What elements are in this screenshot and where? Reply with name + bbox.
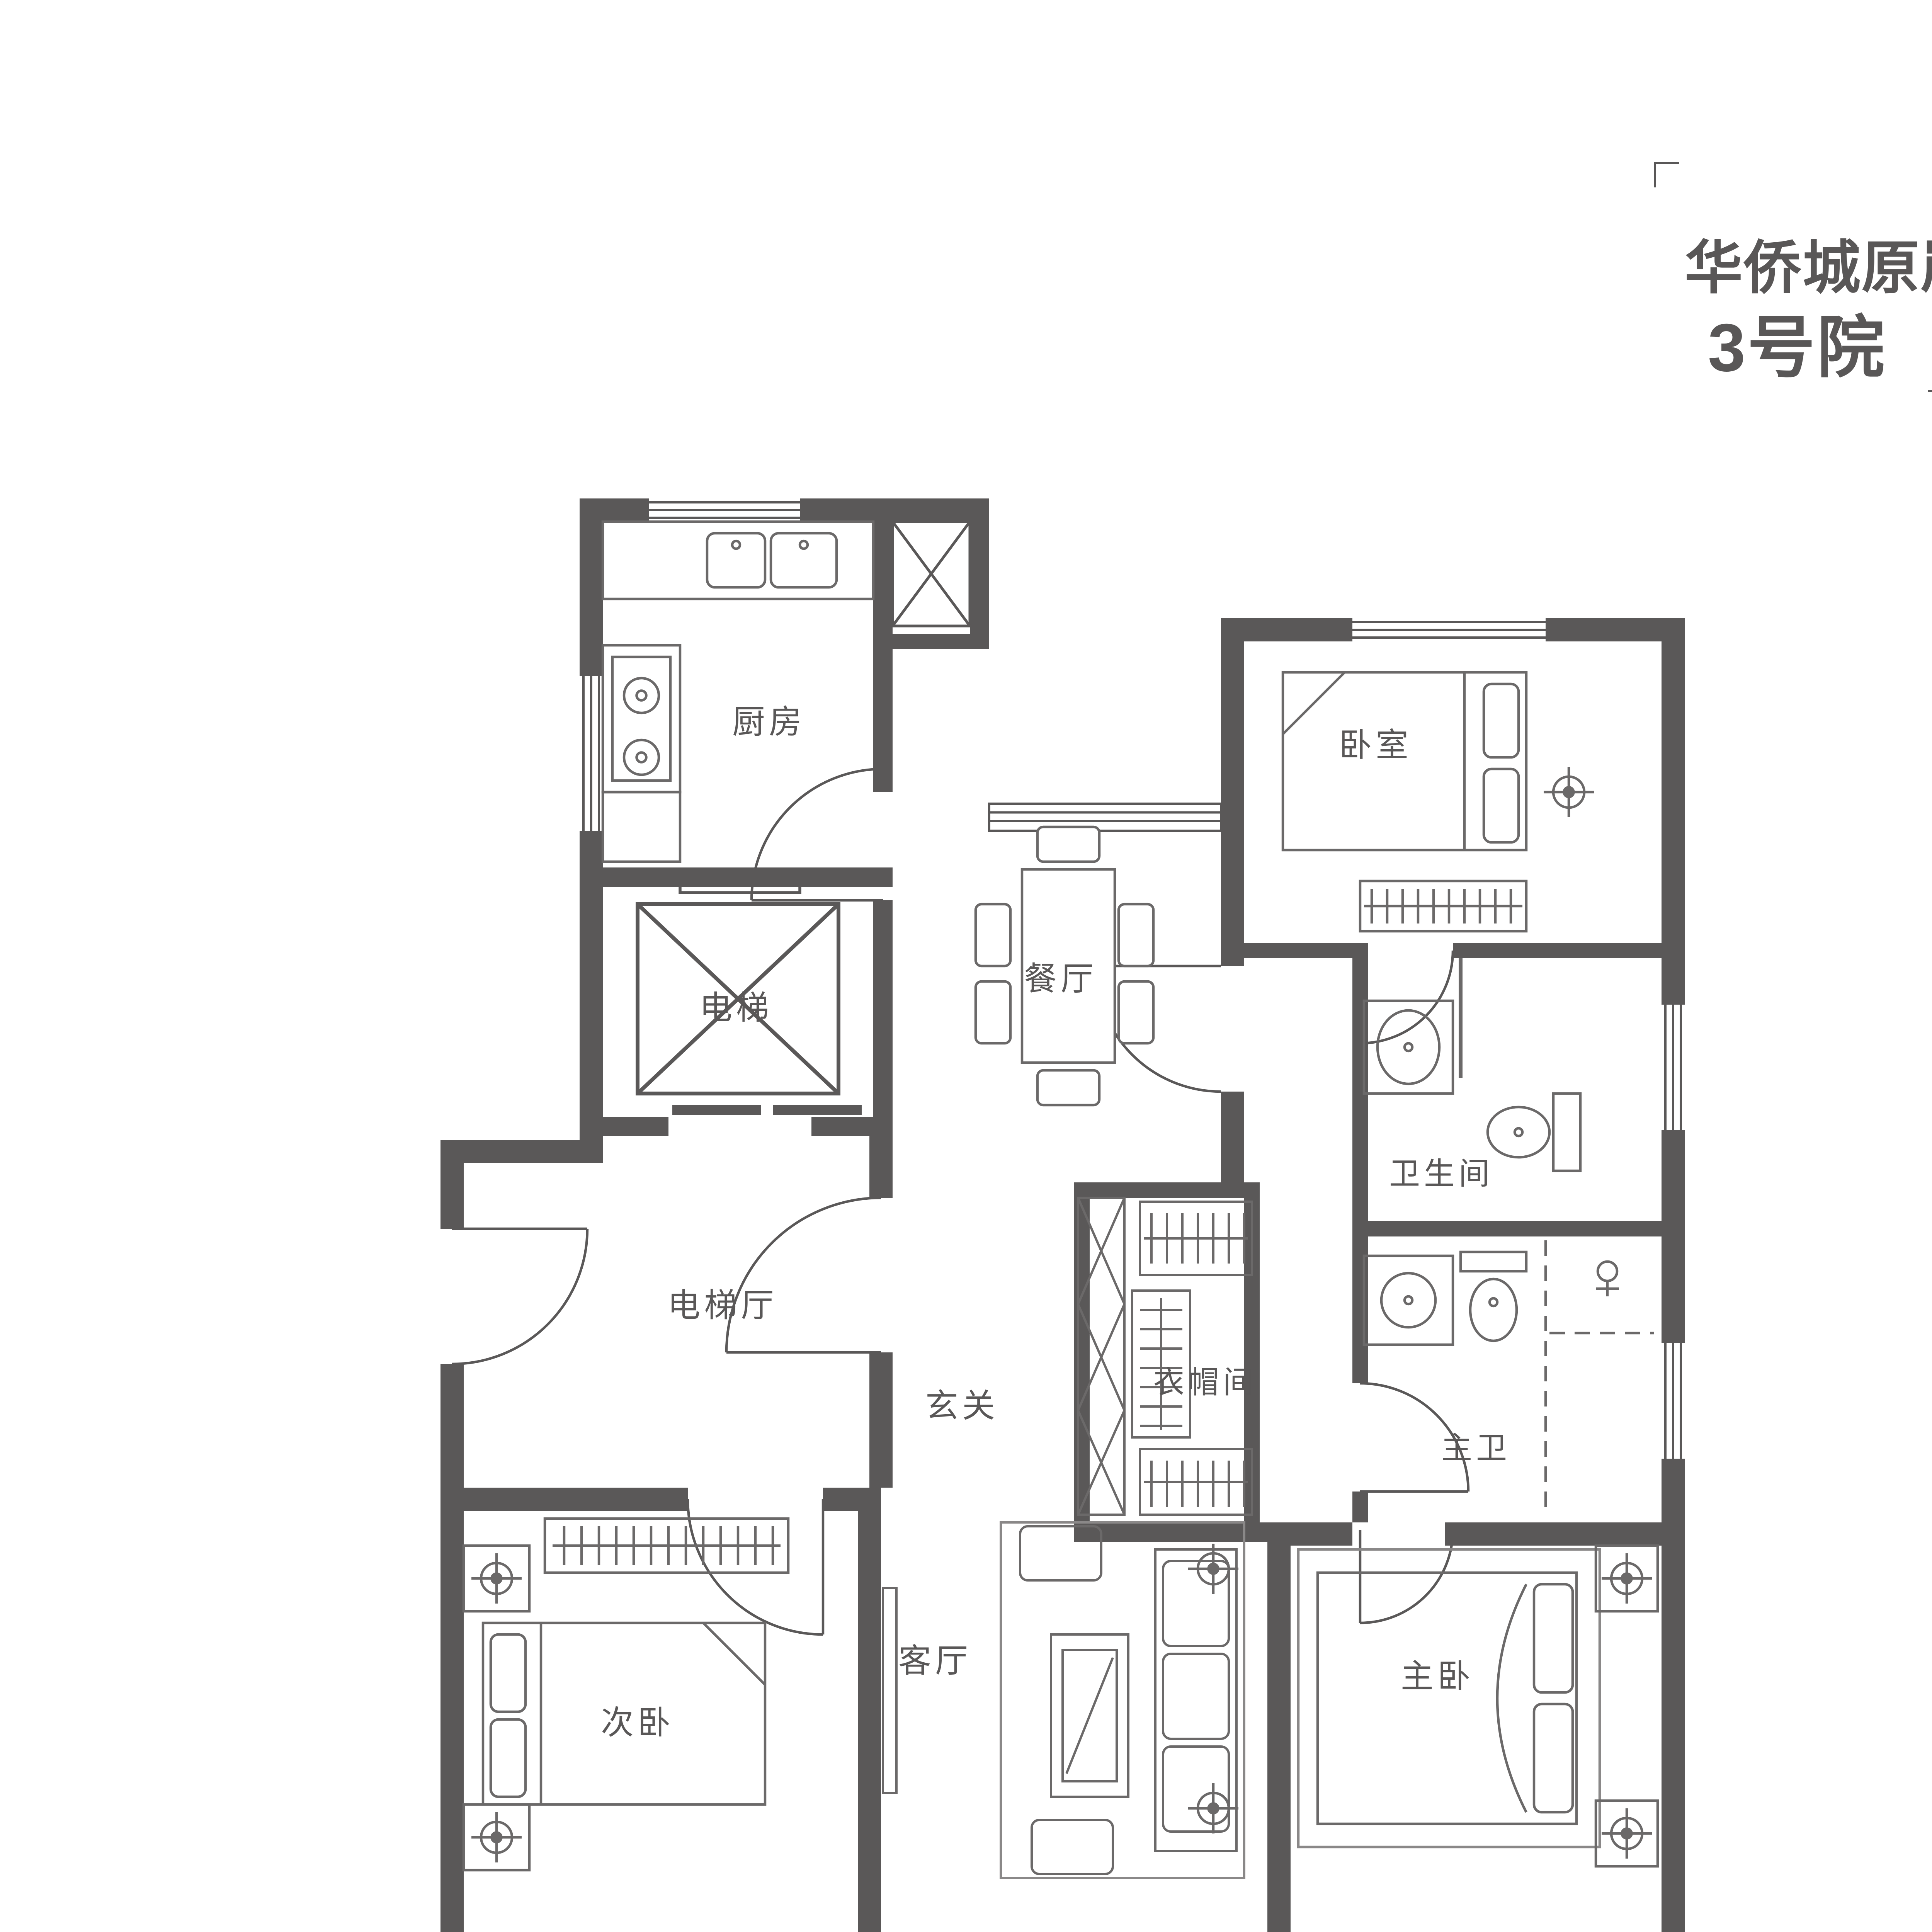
master-bedroom-furniture [1298, 1546, 1658, 1866]
room-label-cloakroom: 衣帽间 [1153, 1356, 1258, 1403]
master-bath-fixtures [1364, 1240, 1654, 1515]
poster-canvas: 华侨城原岸 3号院 [0, 0, 1932, 1932]
floor-plan: 厨房 餐厅 卧室 电梯 电梯厅 玄关 衣帽间 卫生间 主卫 客厅 次卧 主卧 飘… [0, 0, 1932, 1932]
room-label-elevator-hall: 电梯厅 [668, 1278, 778, 1327]
room-label-bedroom: 卧室 [1339, 718, 1412, 766]
room-label-dining: 餐厅 [1024, 952, 1097, 1000]
room-label-master-bedroom: 主卧 [1401, 1649, 1474, 1697]
room-label-elevator: 电梯 [699, 981, 773, 1029]
living-room-furniture [883, 1522, 1244, 1878]
bedroom-furniture [1283, 672, 1526, 931]
kitchen-furniture [603, 522, 873, 862]
bathroom-fixtures [1364, 958, 1580, 1171]
room-label-kitchen: 厨房 [732, 695, 806, 743]
room-label-foyer: 玄关 [925, 1379, 999, 1427]
second-bedroom-furniture [464, 1519, 788, 1870]
room-label-second-bedroom: 次卧 [601, 1696, 674, 1744]
room-label-master-bath: 主卫 [1441, 1422, 1511, 1468]
duct-shaft [893, 522, 970, 626]
room-label-bathroom: 卫生间 [1389, 1148, 1493, 1194]
room-label-living-room: 客厅 [898, 1634, 972, 1682]
